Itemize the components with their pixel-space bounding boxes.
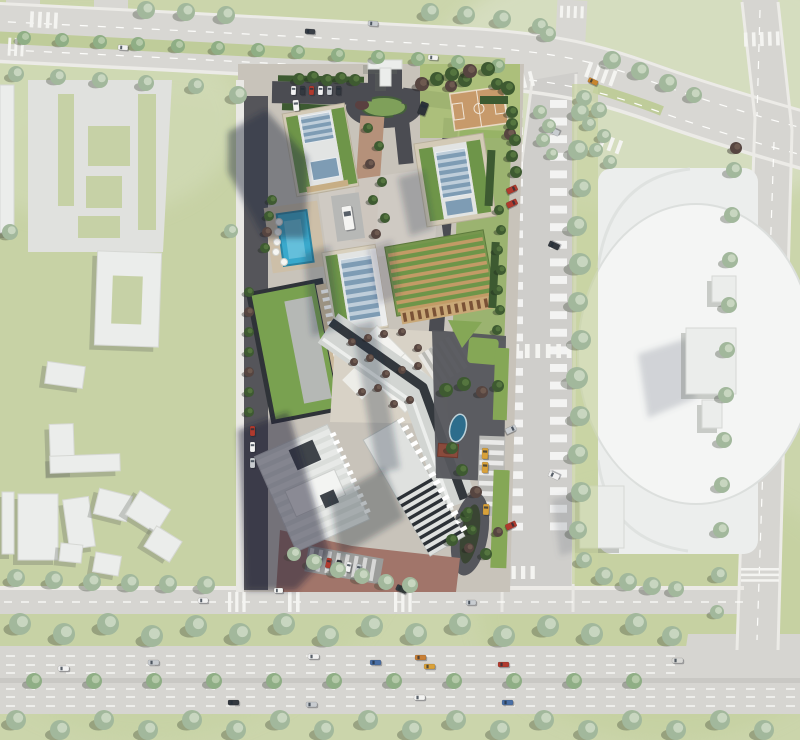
car [58, 666, 70, 672]
scene-svg [0, 0, 800, 740]
car [148, 660, 160, 666]
car [415, 655, 427, 661]
car [482, 462, 490, 474]
hedge [480, 96, 508, 104]
car [293, 100, 301, 113]
aerial-masterplan-render [0, 0, 800, 740]
car [250, 458, 256, 469]
car [250, 426, 256, 437]
campus-court-green [58, 94, 74, 206]
pool-umbrella [273, 249, 280, 256]
courtyard-hole [111, 275, 143, 324]
car [336, 86, 343, 96]
car [308, 654, 320, 660]
car [368, 21, 380, 28]
crosswalk [394, 592, 412, 612]
campus-building [13, 494, 58, 565]
building-a-skylight [310, 157, 340, 180]
dropoff-island [467, 337, 499, 366]
campus-court-green [86, 176, 122, 208]
car [306, 702, 318, 708]
car [327, 86, 334, 96]
car [482, 448, 490, 460]
car [274, 588, 284, 594]
car [502, 700, 514, 706]
car [498, 662, 510, 668]
crosswalk [228, 592, 246, 612]
car [370, 660, 382, 666]
crosswalk [741, 568, 779, 582]
car [466, 600, 477, 606]
campus-court-green [78, 216, 120, 238]
car [198, 598, 209, 604]
pool-umbrella [274, 239, 281, 246]
car [291, 86, 298, 96]
campus-court-green [138, 94, 156, 230]
car [672, 658, 684, 664]
campus-building [0, 85, 14, 238]
campus-court-green [88, 126, 130, 166]
car [428, 55, 440, 62]
se-lawn [490, 470, 509, 568]
car [309, 86, 316, 96]
island-bush [355, 100, 369, 110]
campus-building [45, 454, 121, 479]
car [318, 86, 325, 96]
site-drive [342, 87, 372, 101]
car [483, 504, 491, 516]
car [424, 664, 436, 670]
car [250, 442, 256, 453]
car [300, 86, 307, 96]
campus-building [0, 492, 14, 559]
pool-umbrella [281, 259, 288, 266]
car [414, 695, 426, 701]
car [228, 700, 240, 706]
car [305, 29, 317, 36]
